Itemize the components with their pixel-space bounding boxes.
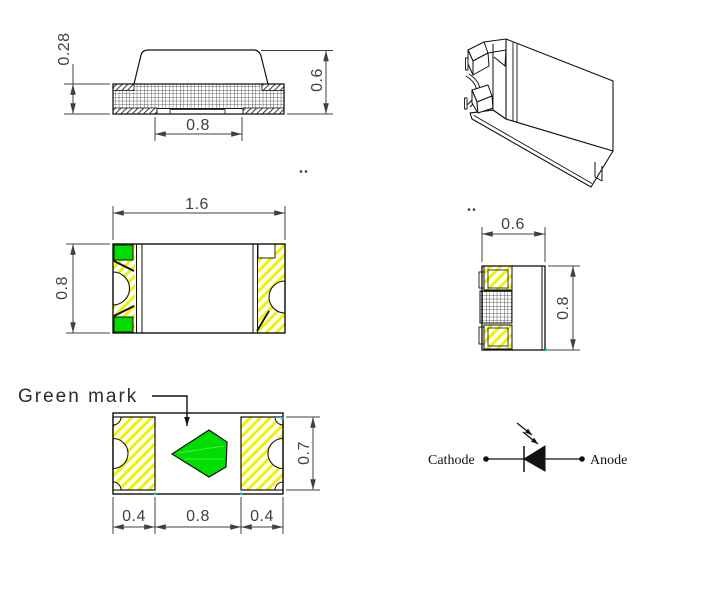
- circuit-symbol: Cathode Anode: [428, 423, 627, 472]
- stray-dot: [300, 170, 303, 173]
- bottom-tray: [170, 110, 225, 115]
- substrate-grid-section: [480, 291, 512, 323]
- epoxy-body-profile: [134, 50, 268, 84]
- green-mark-label: Green mark: [18, 386, 138, 407]
- dim-pad-height: 0.7: [286, 417, 320, 490]
- dim-length: 1.6: [113, 196, 285, 240]
- terminal-band-top-left: [113, 84, 134, 91]
- dim-value: 0.8: [186, 117, 210, 134]
- dim-pad-widths: 0.4 0.8 0.4: [113, 497, 283, 534]
- isometric-view: [465, 39, 614, 211]
- datasheet-page: 0.28 0.6 0.8: [0, 0, 707, 594]
- green-mark-bottom: [114, 317, 133, 332]
- end-view: 0.6 0.8: [479, 216, 580, 351]
- terminal-band-bottom-left: [113, 108, 157, 114]
- anode-label: Anode: [590, 453, 627, 468]
- endpoint-marker: [154, 493, 157, 496]
- endpoint-marker: [281, 417, 284, 420]
- stray-dot: [305, 170, 308, 173]
- endpoint-marker: [545, 349, 548, 352]
- side-view: 0.28 0.6 0.8: [56, 32, 333, 172]
- dim-value: 0.7: [296, 441, 313, 465]
- diode-triangle: [524, 446, 545, 471]
- terminal-band-bottom-right: [243, 108, 284, 114]
- top-view: 1.6 0.8: [54, 196, 285, 333]
- dim-value: 0.8: [555, 296, 572, 320]
- dim-value: 1.6: [185, 196, 209, 213]
- dim-value: 0.8: [54, 276, 71, 300]
- dim-end-width: 0.6: [482, 216, 545, 262]
- terminal-band-top-right: [262, 84, 284, 91]
- iso-upper-tab-step: [466, 58, 469, 70]
- bottom-view: Green mark 0.7 0.4 0.8 0.4: [18, 386, 320, 534]
- component-drawing: 0.28 0.6 0.8: [0, 0, 707, 594]
- endpoint-marker: [240, 493, 243, 496]
- dim-value: 0.6: [501, 216, 525, 233]
- dim-value: 0.6: [309, 68, 326, 92]
- stray-dot: [473, 208, 476, 211]
- iso-lower-tab-step: [465, 98, 468, 109]
- anode-terminal-dot: [579, 456, 585, 462]
- dim-width: 0.8: [54, 244, 110, 333]
- dim-bottom-gap: 0.8: [155, 117, 242, 141]
- dim-terminal-thickness: 0.28: [56, 32, 110, 114]
- dim-end-height: 0.8: [548, 266, 580, 350]
- dim-value: 0.4: [250, 508, 274, 525]
- cathode-label: Cathode: [428, 453, 475, 468]
- dim-value: 0.28: [56, 32, 73, 65]
- green-mark-top: [114, 245, 133, 260]
- dim-value: 0.4: [122, 508, 146, 525]
- right-terminal-notch-square: [258, 244, 275, 258]
- stray-dot: [468, 208, 471, 211]
- dim-value: 0.8: [186, 508, 210, 525]
